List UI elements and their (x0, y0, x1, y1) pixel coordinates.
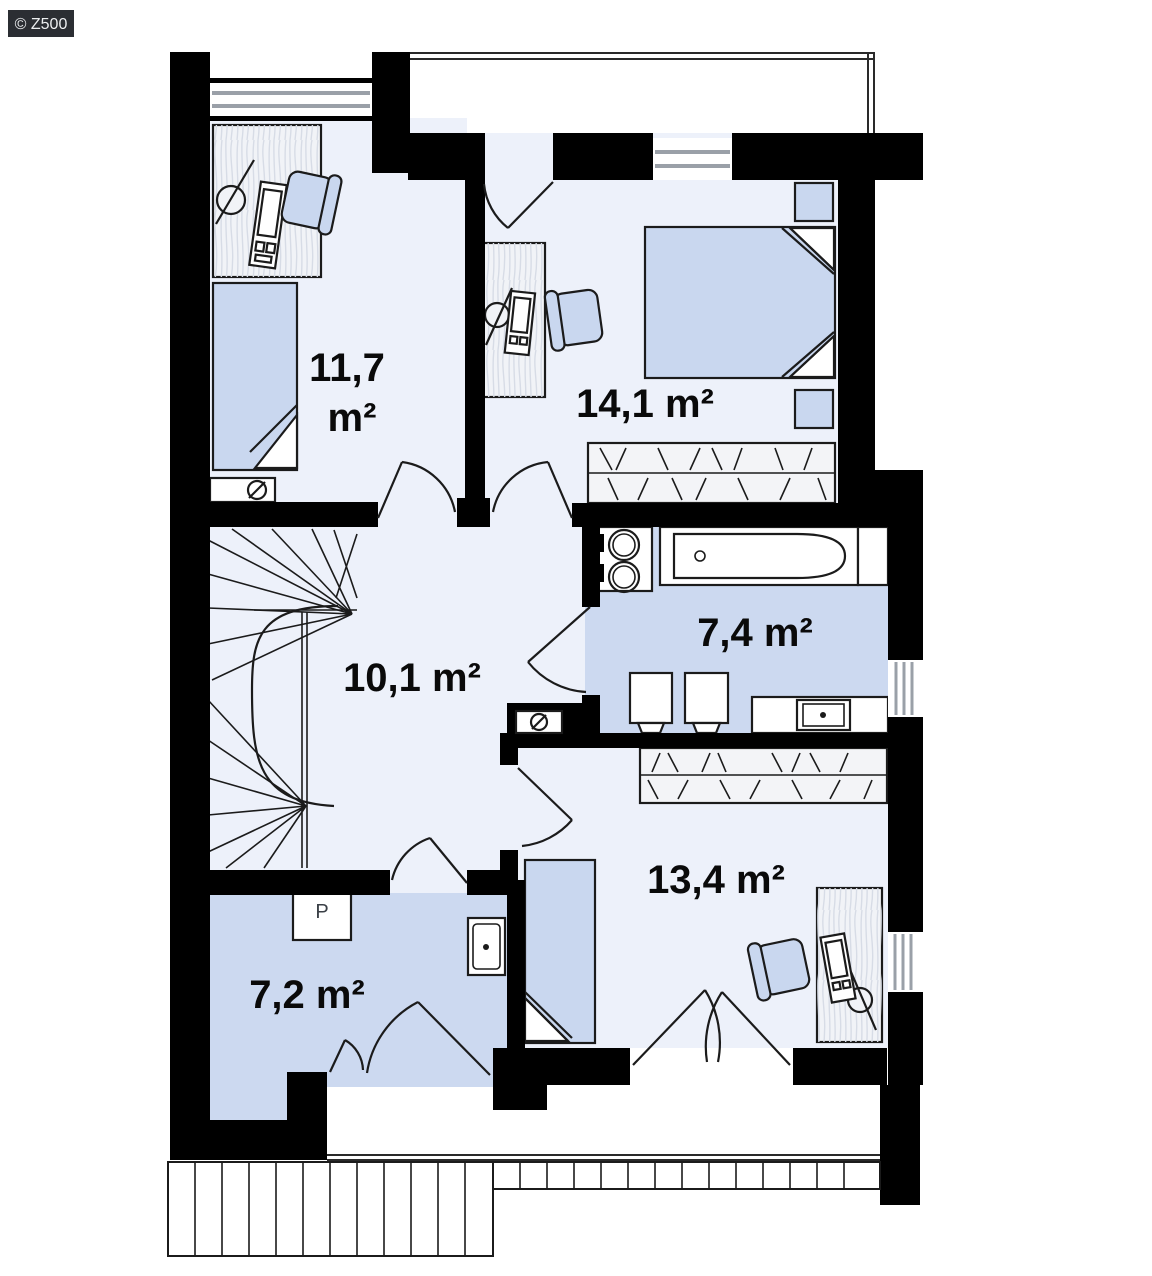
toilet (630, 673, 672, 723)
label-room-7-2: 7,2 m² (249, 973, 365, 1017)
terrace-railing-left (168, 1162, 493, 1256)
floor-door-gap-2 (490, 500, 572, 530)
label-room-11-7-line1: 11,7 (309, 346, 385, 390)
floor-door-gap-6 (327, 1072, 493, 1087)
floor-door-gap-1 (378, 500, 458, 530)
terrace-railing-right (493, 1162, 880, 1189)
bidet (685, 673, 728, 723)
window-room-11-7 (210, 78, 372, 121)
office-chair (544, 285, 604, 352)
badge-text: © Z500 (15, 16, 68, 33)
floor-door-gap-5 (500, 763, 520, 853)
vent-box-bathroom (516, 711, 562, 733)
window-bathroom (888, 660, 921, 717)
floor-room-7-2-strip (207, 1072, 287, 1122)
washbasin-drain (483, 944, 489, 950)
sink-drain (820, 712, 826, 718)
bathtub (660, 527, 858, 585)
nightstand-bottom (795, 390, 833, 428)
floor-plan: P (0, 0, 1152, 1276)
terrace (168, 1155, 880, 1256)
laptop (505, 291, 535, 355)
bath-counter-right (858, 527, 888, 585)
label-room-14-1: 14,1 m² (576, 382, 714, 426)
bidet-base (693, 723, 720, 733)
watermark-badge: © Z500 (8, 10, 74, 37)
washer-label: P (315, 901, 328, 923)
balcony-railing (410, 53, 875, 133)
toilet-base (638, 723, 664, 733)
label-room-11-7-line2: m² (328, 396, 377, 440)
floor-plan-page: P (0, 0, 1152, 1276)
label-bathroom-7-4: 7,4 m² (697, 611, 813, 655)
window-room-14-1 (653, 138, 732, 180)
nightstand-top (795, 183, 833, 221)
label-hall-10-1: 10,1 m² (343, 656, 481, 700)
label-room-13-4: 13,4 m² (647, 858, 785, 902)
window-room-13-4 (888, 932, 918, 992)
